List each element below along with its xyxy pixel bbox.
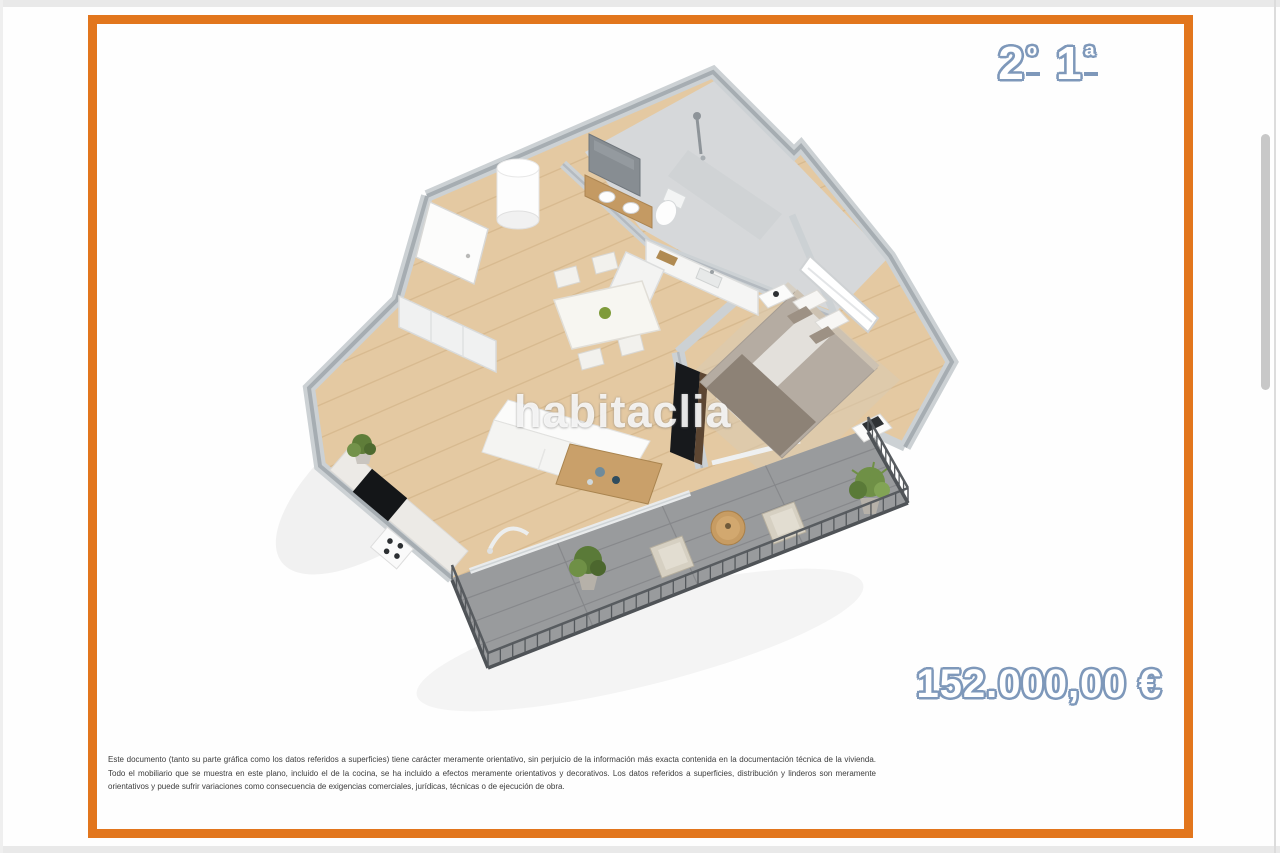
apartment-ordinal: ª	[1084, 40, 1098, 76]
page-edge-right	[1274, 0, 1276, 853]
outdoor-round-table	[711, 511, 745, 545]
watermark: habitaclia	[514, 386, 732, 438]
disclaimer-text: Este documento (tanto su parte gráfica c…	[108, 753, 876, 794]
water-heater	[497, 159, 539, 229]
price-label: 152.000,00 €	[900, 662, 1162, 707]
apartment-label: 1ª	[1056, 36, 1098, 90]
scrollbar-thumb[interactable]	[1261, 134, 1270, 390]
page-edge-top	[0, 0, 1280, 7]
floor-ordinal: º	[1026, 40, 1040, 76]
page-edge-left	[0, 0, 3, 853]
page-edge-bottom	[0, 846, 1280, 853]
floor-label: 2º	[998, 36, 1040, 90]
page: habitaclia 2º1ª 152.000,00 € Este docume…	[0, 0, 1280, 853]
unit-label: 2º1ª	[968, 36, 1128, 90]
green-centerpiece	[599, 307, 611, 319]
